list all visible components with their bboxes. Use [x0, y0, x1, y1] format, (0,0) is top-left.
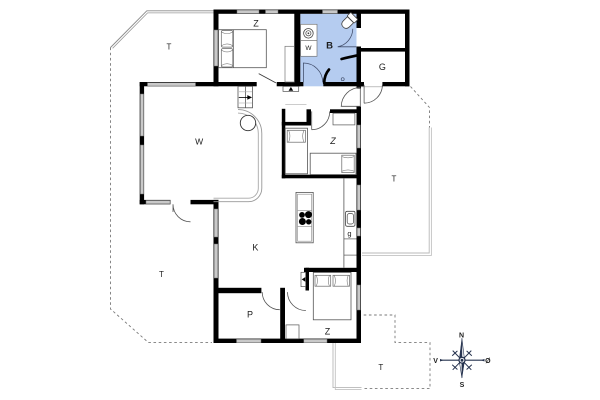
svg-text:W: W: [195, 137, 203, 147]
svg-text:G: G: [379, 62, 386, 72]
svg-text:Z: Z: [329, 136, 336, 146]
svg-text:P: P: [247, 310, 253, 320]
svg-text:T: T: [378, 363, 383, 372]
svg-text:S: S: [460, 382, 465, 389]
svg-text:Z: Z: [325, 327, 331, 337]
svg-text:N: N: [459, 333, 464, 340]
svg-text:T: T: [167, 43, 172, 52]
svg-text:V: V: [433, 358, 438, 365]
svg-text:T: T: [392, 175, 397, 184]
svg-text:T: T: [159, 270, 164, 279]
svg-text:Ø: Ø: [485, 358, 491, 365]
svg-text:g: g: [347, 229, 351, 238]
svg-text:K: K: [252, 243, 258, 253]
svg-text:W: W: [305, 45, 312, 52]
svg-text:B: B: [326, 41, 333, 52]
svg-text:Z: Z: [253, 19, 259, 29]
